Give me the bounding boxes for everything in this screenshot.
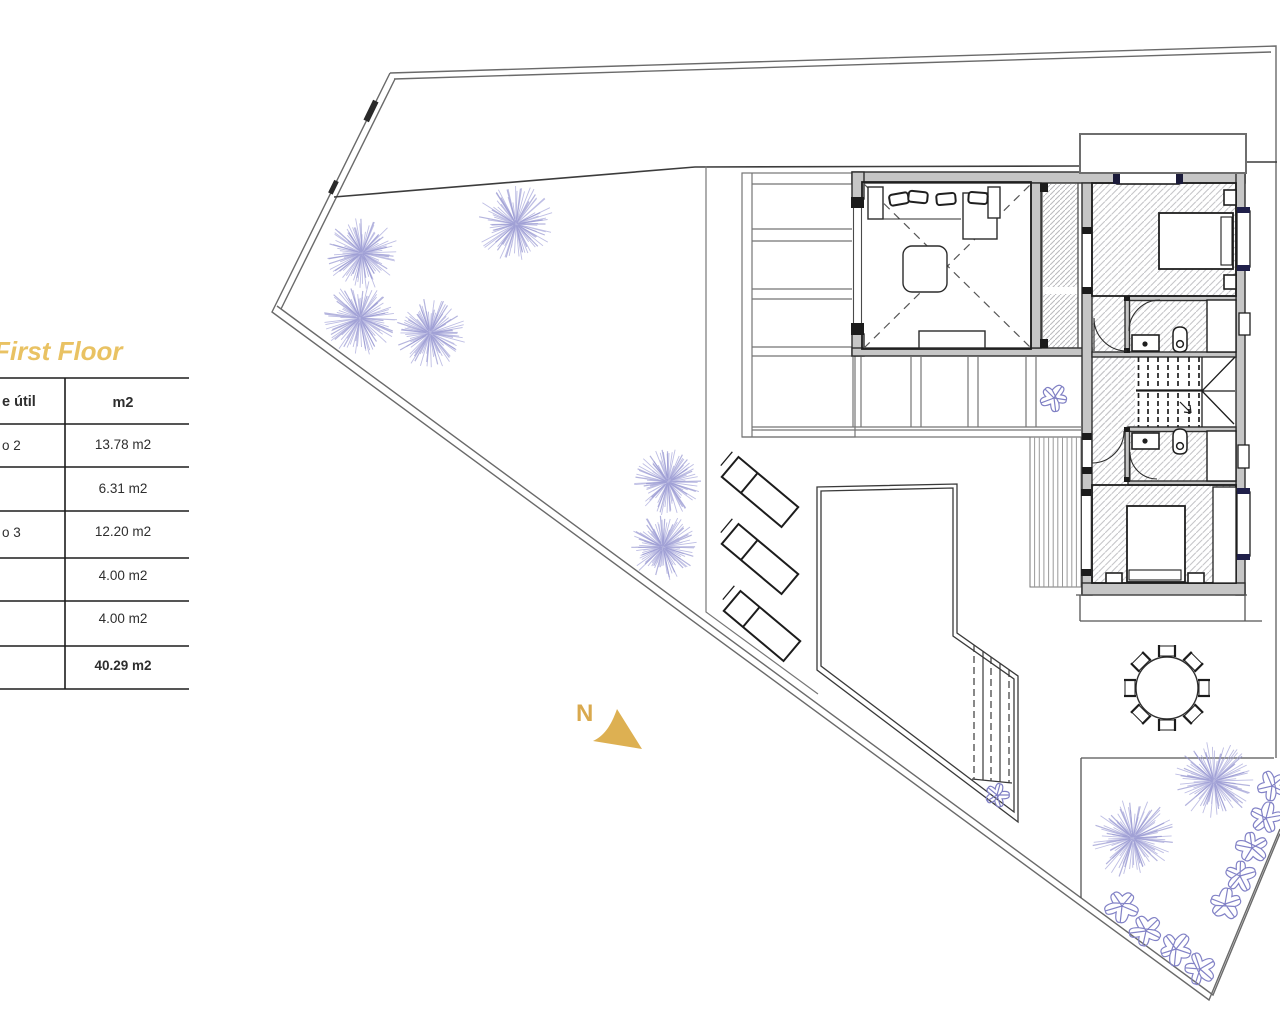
svg-text:4.00 m2: 4.00 m2: [99, 568, 148, 583]
svg-text:40.29 m2: 40.29 m2: [94, 658, 151, 673]
svg-text:e útil: e útil: [2, 394, 36, 410]
svg-text:o 2: o 2: [2, 438, 21, 453]
svg-text:12.20 m2: 12.20 m2: [95, 524, 151, 539]
svg-text:6.31 m2: 6.31 m2: [99, 481, 148, 496]
svg-text:N: N: [576, 700, 593, 727]
svg-text:m2: m2: [113, 395, 134, 411]
svg-text:o 3: o 3: [2, 525, 21, 540]
svg-text:4.00 m2: 4.00 m2: [99, 611, 148, 626]
svg-text:13.78 m2: 13.78 m2: [95, 437, 151, 452]
svg-text:First Floor: First Floor: [0, 336, 124, 366]
